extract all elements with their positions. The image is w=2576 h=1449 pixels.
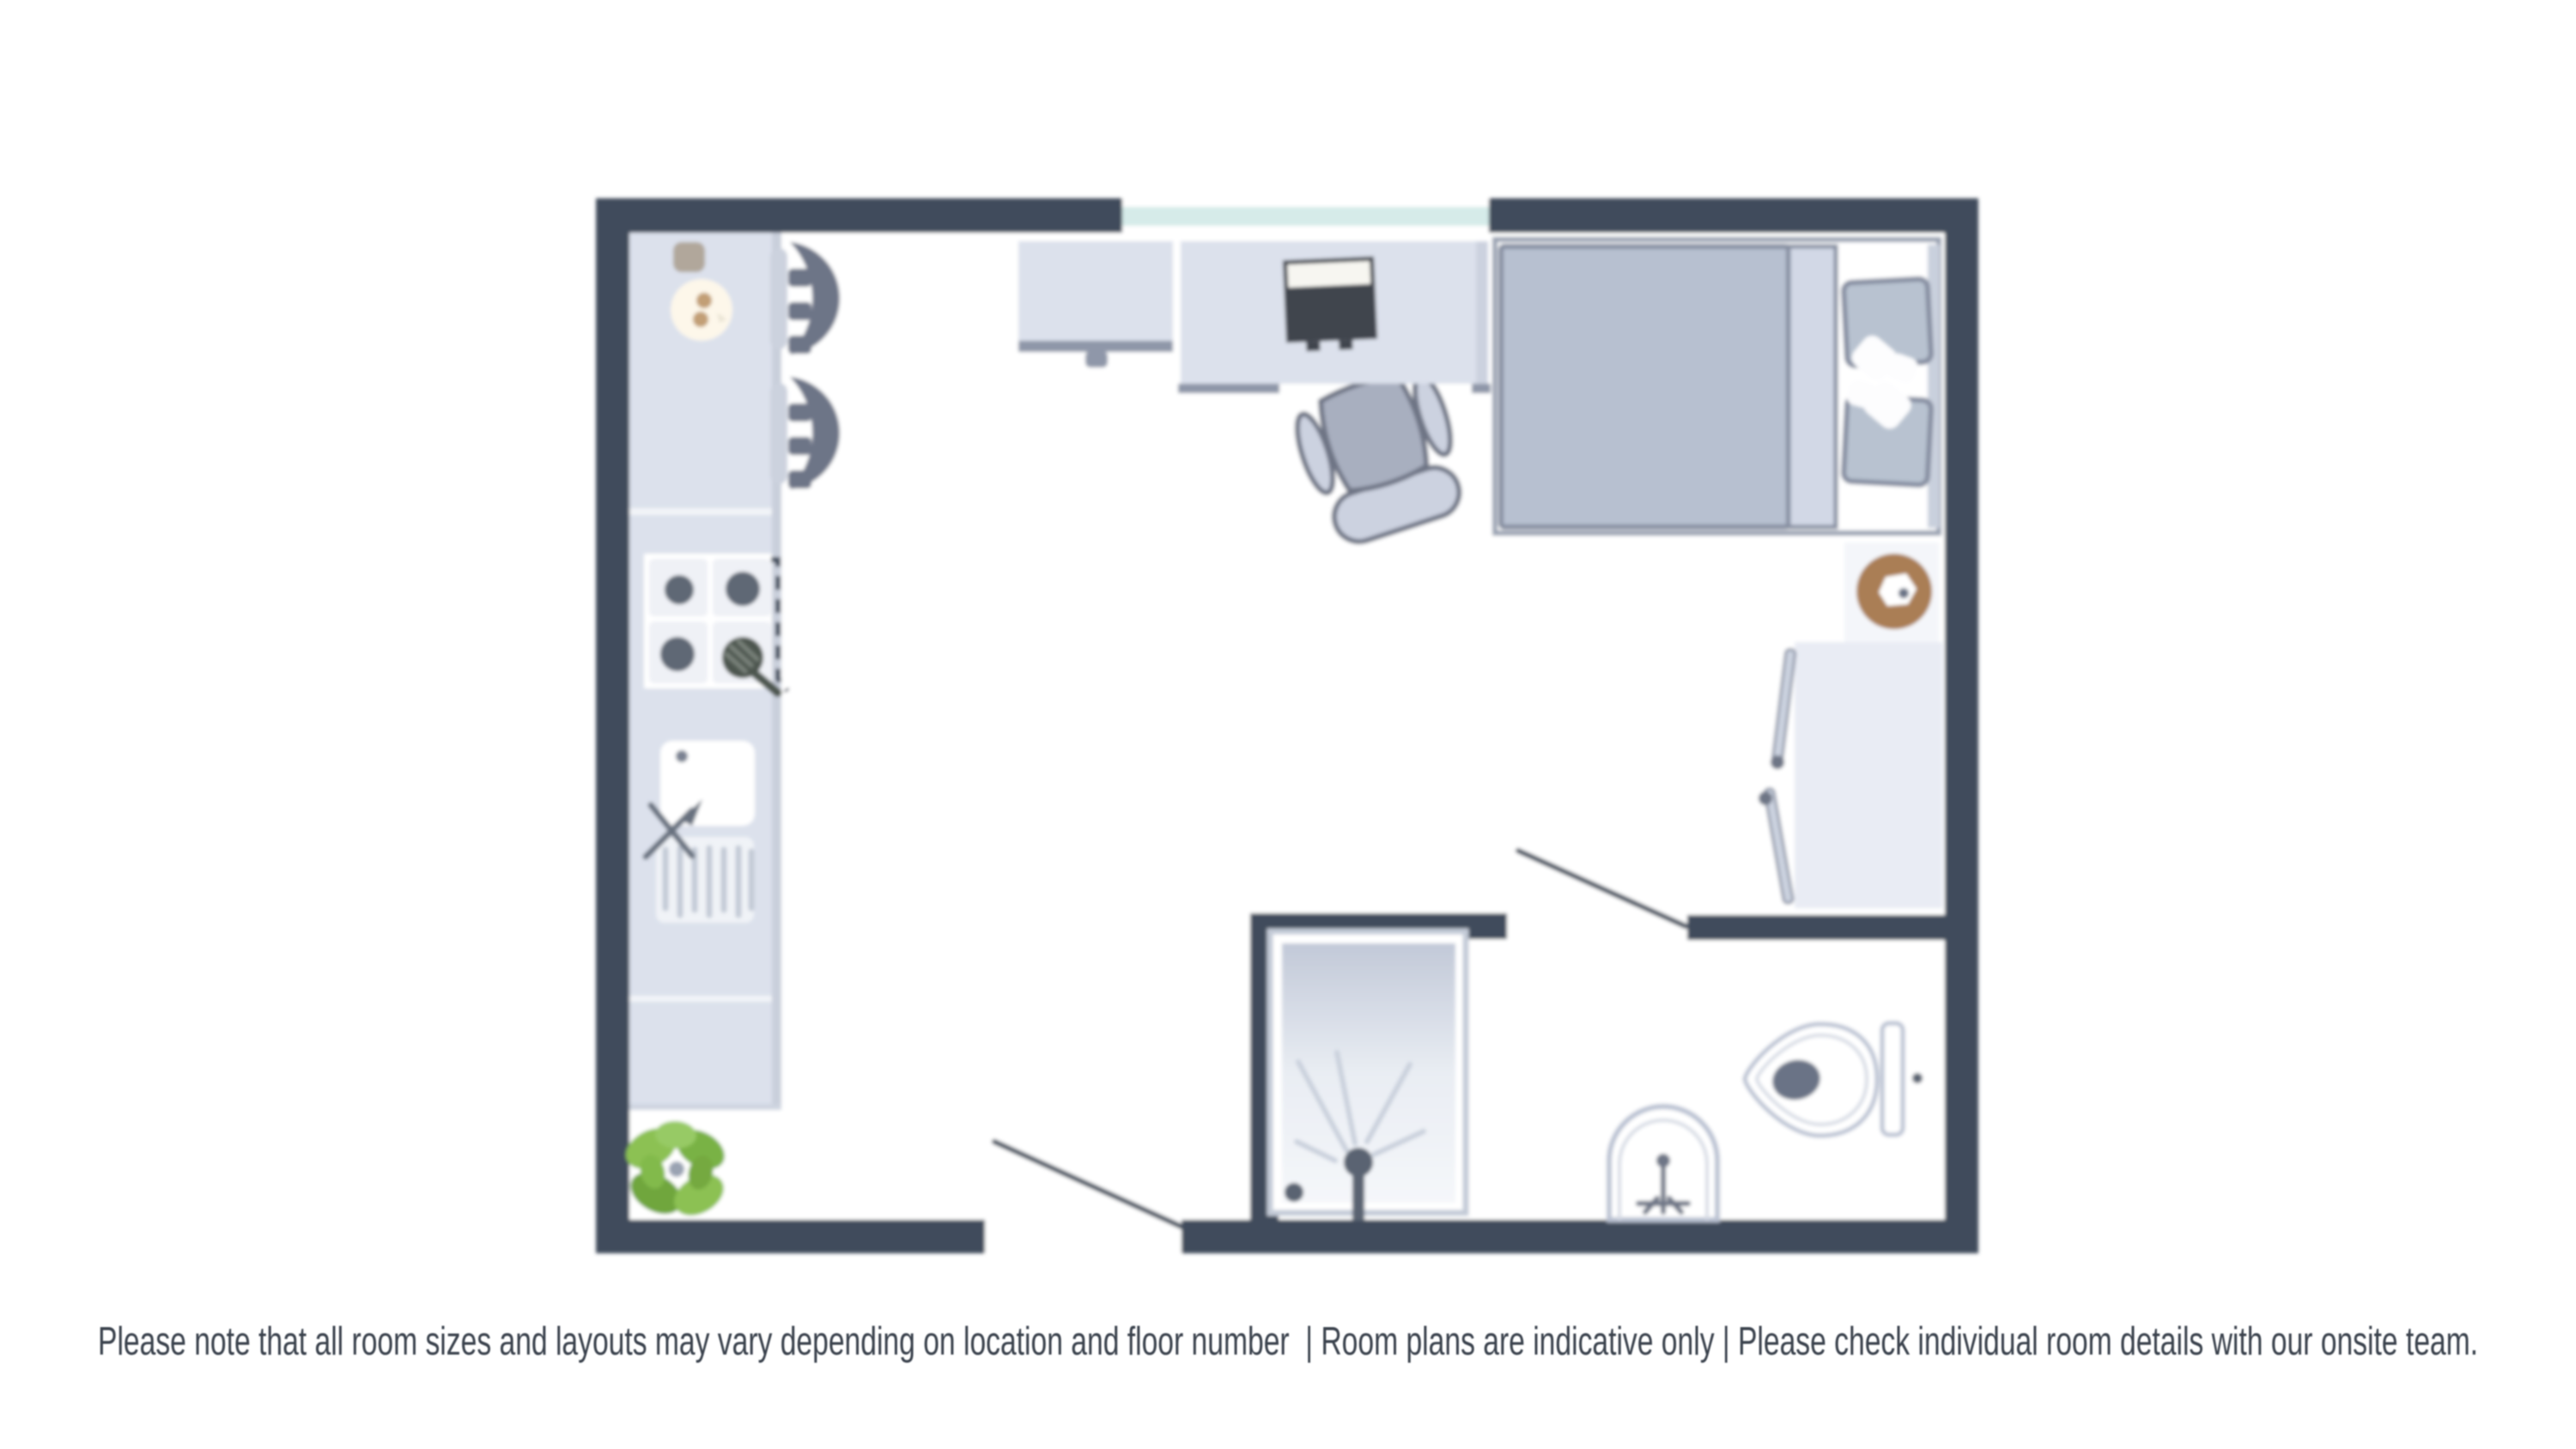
svg-text:Please note that all room size: Please note that all room sizes and layo… [98,1319,2478,1363]
